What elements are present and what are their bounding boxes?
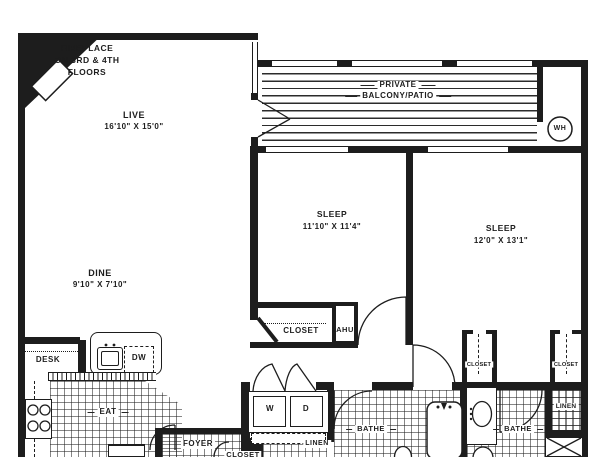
leader-line [439, 96, 451, 97]
wall [462, 330, 467, 388]
wall [78, 340, 86, 372]
wall [572, 330, 583, 334]
fireplace-note-line2: ON 3RD & 4TH [54, 56, 119, 65]
ahu-label: AHU [336, 326, 354, 334]
leader-line [390, 429, 396, 430]
wall [256, 302, 332, 308]
linen2-label: LINEN [554, 403, 579, 410]
leader-line [88, 412, 95, 413]
leader-line [121, 412, 128, 413]
wall [545, 430, 583, 437]
desk-label: DESK [36, 356, 60, 365]
window [252, 42, 258, 93]
cabinet-dashed-edge [34, 381, 35, 399]
wall [550, 330, 560, 334]
live-room-dims: 16'10" X 15'0" [104, 123, 163, 132]
window [457, 60, 532, 67]
sleep2-closet1-label: CLOSET [465, 361, 493, 367]
wall [581, 60, 588, 457]
dryer-label: D [303, 405, 309, 414]
window [272, 60, 337, 67]
leader-line [346, 429, 352, 430]
closet-rod [478, 334, 479, 374]
desk-dashed-edge [24, 351, 78, 352]
balcony-decking [262, 67, 537, 146]
leader-line [345, 96, 357, 97]
dine-room-label: DINE [88, 269, 112, 279]
cabinet-dashed-edge [34, 439, 35, 457]
closet1-label: CLOSET [281, 327, 320, 336]
sleep2-door [413, 345, 455, 387]
wall [550, 330, 555, 388]
foyer-closet-label: CLOSET [224, 451, 261, 457]
closet-rod [264, 323, 326, 324]
ahu-closet [332, 302, 358, 345]
wall [25, 33, 258, 40]
closet-chamfer-wall [258, 318, 277, 342]
window [428, 146, 508, 153]
wall [486, 330, 497, 334]
bathe2-label: BATHE [493, 425, 543, 433]
sleep2-room-dims: 12'0" X 13'1" [474, 237, 528, 246]
wall [372, 382, 413, 390]
stove [25, 399, 52, 439]
floorplan-canvas: FIREPLACE ON 3RD & 4TH FLOORS LIVE 16'10… [0, 0, 612, 457]
wall [251, 93, 258, 100]
sleep1-room-label: SLEEP [317, 210, 347, 219]
leader-line [421, 85, 435, 86]
wall [18, 337, 80, 344]
balcony-label-line1: PRIVATE [361, 81, 436, 90]
kitchen-sink-basin [101, 351, 119, 366]
shower [545, 437, 583, 457]
wall [250, 146, 258, 320]
fireplace-firebox [31, 59, 72, 100]
leader-line [537, 429, 543, 430]
fireplace-note-line3: FLOORS [68, 68, 106, 77]
bathe1-label: BATHE [346, 425, 396, 433]
sleep2-room-label: SLEEP [486, 224, 516, 233]
balcony-label-line2: BALCONY/PATIO [345, 92, 451, 101]
washer-label: W [266, 405, 274, 414]
dine-room-dims: 9'10" X 7'10" [73, 281, 127, 290]
closet-rod [566, 334, 567, 374]
sleep1-room-dims: 11'10" X 11'4" [303, 223, 361, 232]
wall [537, 67, 543, 122]
leader-line [361, 85, 375, 86]
wall [162, 428, 243, 434]
wall [155, 428, 162, 457]
sleep2-closet2-label: CLOSET [552, 361, 580, 367]
window [266, 146, 348, 153]
wall [492, 330, 497, 388]
water-heater-label: WH [554, 125, 567, 133]
live-room-label: LIVE [123, 111, 145, 121]
dishwasher-label: DW [132, 354, 146, 363]
wall [406, 153, 413, 345]
fireplace-note-line1: FIREPLACE [61, 44, 114, 53]
linen1-label: LINEN [303, 440, 331, 448]
window [352, 60, 442, 67]
wall [251, 137, 258, 146]
vanity [466, 387, 497, 445]
sleep1-door [358, 297, 406, 345]
wall [18, 33, 25, 457]
wall [316, 382, 334, 390]
counter-bar-edge [48, 372, 156, 381]
wall [462, 330, 473, 334]
foyer-label: FOYER [181, 440, 215, 449]
refrigerator [108, 444, 145, 457]
bath1-floor-tile [334, 390, 460, 457]
laundry-bifold-doors [253, 364, 316, 391]
leader-line [493, 429, 499, 430]
eat-label: EAT [88, 408, 129, 417]
